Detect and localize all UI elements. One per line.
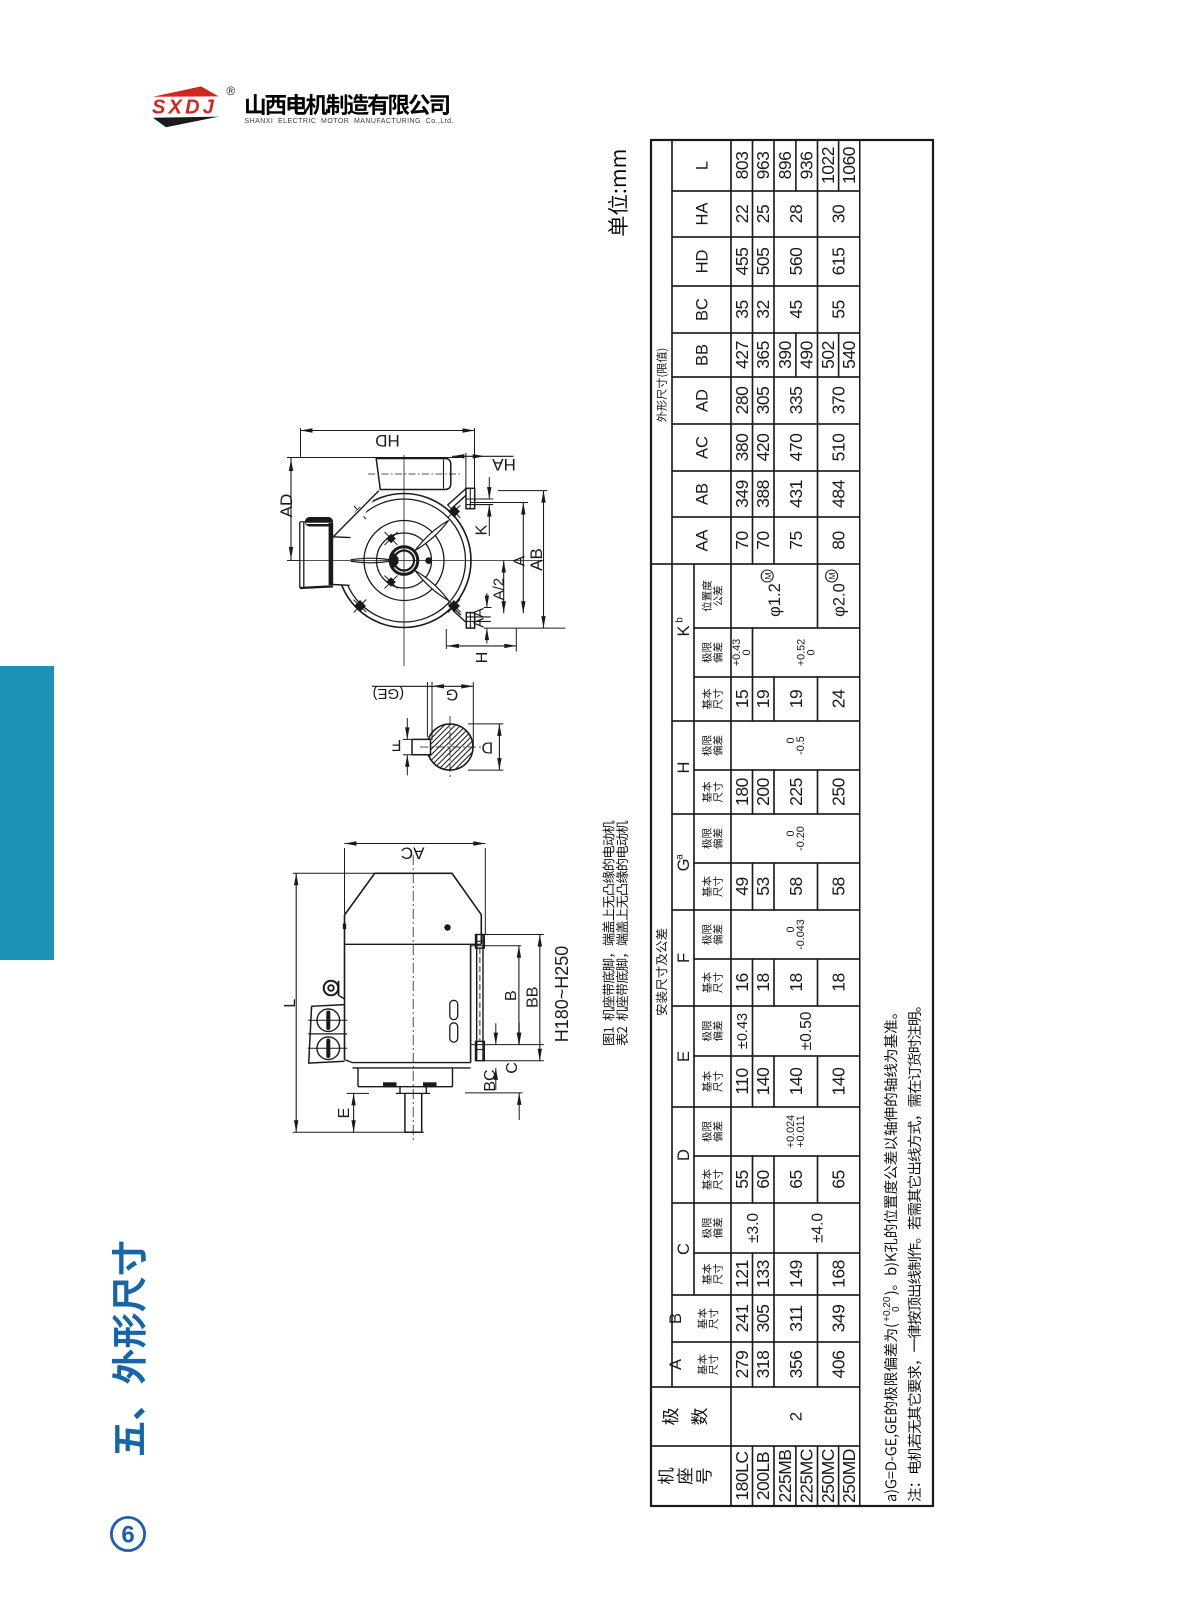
svg-text:311: 311 bbox=[786, 1305, 806, 1331]
svg-text:AD: AD bbox=[277, 494, 296, 518]
svg-text:560: 560 bbox=[786, 247, 806, 275]
svg-text:490: 490 bbox=[797, 340, 817, 368]
svg-text:250: 250 bbox=[829, 777, 849, 805]
svg-text:70: 70 bbox=[732, 531, 752, 550]
svg-text:963: 963 bbox=[753, 152, 773, 180]
svg-text:HD: HD bbox=[694, 250, 712, 274]
svg-text:0: 0 bbox=[806, 649, 818, 655]
svg-text:180: 180 bbox=[732, 777, 752, 805]
svg-text:365: 365 bbox=[753, 341, 773, 369]
svg-text:0: 0 bbox=[891, 1306, 902, 1312]
svg-text:32: 32 bbox=[753, 300, 773, 318]
svg-text:G: G bbox=[446, 685, 458, 702]
svg-text:1060: 1060 bbox=[839, 146, 859, 184]
svg-text:M: M bbox=[827, 572, 837, 579]
svg-text:b: b bbox=[675, 617, 686, 623]
svg-text:BC: BC bbox=[482, 1069, 499, 1091]
svg-text:2: 2 bbox=[786, 1412, 805, 1421]
svg-text:K: K bbox=[675, 625, 693, 636]
svg-text:431: 431 bbox=[786, 480, 806, 508]
svg-text:C: C bbox=[675, 1243, 693, 1255]
svg-text:505: 505 bbox=[753, 248, 773, 276]
svg-text:a: a bbox=[675, 854, 686, 860]
svg-text:49: 49 bbox=[732, 877, 752, 895]
svg-text:356: 356 bbox=[786, 1351, 806, 1379]
svg-text:470: 470 bbox=[786, 433, 806, 461]
svg-text:6: 6 bbox=[121, 1522, 134, 1549]
svg-text:-0.20: -0.20 bbox=[795, 826, 807, 851]
svg-text:19: 19 bbox=[753, 690, 773, 708]
svg-text:121: 121 bbox=[732, 1260, 752, 1288]
svg-text:BC: BC bbox=[694, 298, 712, 321]
svg-text:SXDJ: SXDJ bbox=[152, 97, 217, 119]
svg-text:H: H bbox=[474, 652, 491, 664]
svg-text:19: 19 bbox=[786, 690, 806, 708]
svg-text:B: B bbox=[503, 990, 520, 1001]
svg-text:A/2: A/2 bbox=[490, 578, 507, 601]
svg-text:349: 349 bbox=[732, 480, 752, 508]
svg-text:18: 18 bbox=[829, 973, 849, 991]
svg-text:H180~H250: H180~H250 bbox=[552, 946, 572, 1043]
svg-text:55: 55 bbox=[829, 300, 849, 318]
svg-text:φ2.0: φ2.0 bbox=[831, 583, 849, 617]
svg-text:D: D bbox=[675, 1149, 693, 1161]
svg-text:E: E bbox=[675, 1051, 693, 1062]
svg-text:110: 110 bbox=[732, 1068, 752, 1095]
svg-text:15: 15 bbox=[732, 690, 752, 708]
svg-text:E: E bbox=[336, 1108, 353, 1119]
svg-text:22: 22 bbox=[732, 205, 752, 223]
svg-text:936: 936 bbox=[797, 152, 817, 180]
svg-text:60: 60 bbox=[753, 1170, 773, 1189]
svg-text:200: 200 bbox=[753, 777, 773, 805]
svg-text:BB: BB bbox=[694, 344, 712, 366]
svg-text:AB: AB bbox=[694, 483, 712, 505]
svg-text:18: 18 bbox=[786, 973, 806, 991]
svg-text:225: 225 bbox=[786, 778, 806, 806]
svg-text:70: 70 bbox=[753, 531, 773, 550]
svg-text:M: M bbox=[763, 572, 773, 579]
svg-text:AD: AD bbox=[694, 389, 712, 412]
svg-text:140: 140 bbox=[753, 1067, 773, 1095]
svg-text:F: F bbox=[391, 736, 401, 753]
svg-text:225MB: 225MB bbox=[775, 1450, 795, 1503]
svg-text:349: 349 bbox=[829, 1305, 849, 1333]
svg-text:±0.43: ±0.43 bbox=[735, 1013, 751, 1049]
svg-text:180LC: 180LC bbox=[732, 1451, 752, 1500]
svg-text:335: 335 bbox=[786, 387, 806, 415]
svg-text:0: 0 bbox=[741, 649, 753, 655]
svg-text:58: 58 bbox=[786, 877, 806, 895]
svg-text:±4.0: ±4.0 bbox=[809, 1213, 826, 1243]
svg-text:-0.5: -0.5 bbox=[795, 736, 807, 755]
svg-text:803: 803 bbox=[732, 152, 752, 180]
svg-text:168: 168 bbox=[829, 1260, 849, 1288]
svg-text:279: 279 bbox=[732, 1351, 752, 1379]
svg-text:615: 615 bbox=[829, 248, 849, 276]
svg-text:45: 45 bbox=[786, 300, 806, 318]
svg-text:®: ® bbox=[226, 84, 235, 98]
svg-text:H: H bbox=[675, 762, 693, 774]
svg-text:F: F bbox=[675, 953, 693, 963]
svg-text:133: 133 bbox=[753, 1260, 773, 1288]
svg-text:55: 55 bbox=[732, 1170, 752, 1188]
svg-text:420: 420 bbox=[753, 433, 773, 461]
svg-text:AC: AC bbox=[694, 436, 712, 459]
svg-text:149: 149 bbox=[786, 1260, 806, 1288]
svg-text:-0.043: -0.043 bbox=[795, 919, 807, 950]
svg-text:540: 540 bbox=[839, 340, 859, 368]
svg-text:75: 75 bbox=[786, 531, 806, 549]
svg-text:±3.0: ±3.0 bbox=[745, 1213, 762, 1243]
svg-text:225MC: 225MC bbox=[797, 1449, 817, 1503]
svg-text:30: 30 bbox=[829, 204, 849, 223]
svg-text:28: 28 bbox=[786, 205, 806, 223]
svg-text:502: 502 bbox=[818, 341, 838, 369]
svg-text:K: K bbox=[474, 524, 491, 535]
svg-text:A: A bbox=[511, 555, 528, 566]
svg-text:A: A bbox=[667, 1359, 685, 1370]
svg-text:AA: AA bbox=[471, 608, 488, 628]
svg-text:484: 484 bbox=[829, 479, 849, 507]
svg-text:370: 370 bbox=[829, 386, 849, 414]
svg-text:25: 25 bbox=[753, 205, 773, 223]
svg-text:58: 58 bbox=[829, 877, 849, 895]
svg-text:AB: AB bbox=[527, 548, 546, 571]
svg-text:D: D bbox=[482, 739, 494, 756]
svg-text:427: 427 bbox=[732, 341, 752, 369]
svg-text:65: 65 bbox=[786, 1170, 806, 1188]
svg-text:HA: HA bbox=[694, 203, 712, 226]
svg-text:HD: HD bbox=[375, 431, 400, 450]
svg-text:305: 305 bbox=[753, 1305, 773, 1333]
svg-text:80: 80 bbox=[829, 531, 849, 550]
svg-text:35: 35 bbox=[732, 300, 752, 318]
svg-text:18: 18 bbox=[753, 973, 773, 991]
svg-text:1022: 1022 bbox=[818, 147, 838, 184]
svg-text:280: 280 bbox=[732, 386, 752, 414]
svg-text:455: 455 bbox=[732, 248, 752, 276]
svg-text:(GE): (GE) bbox=[372, 685, 404, 702]
svg-text:L: L bbox=[694, 161, 712, 170]
svg-text:±0.50: ±0.50 bbox=[798, 1011, 815, 1050]
svg-text:250MD: 250MD bbox=[839, 1449, 859, 1503]
svg-text:305: 305 bbox=[753, 387, 773, 415]
svg-text:B: B bbox=[667, 1313, 685, 1324]
svg-text:318: 318 bbox=[753, 1351, 773, 1379]
svg-text:140: 140 bbox=[786, 1067, 806, 1095]
svg-text:241: 241 bbox=[732, 1305, 752, 1333]
svg-text:200LB: 200LB bbox=[753, 1452, 773, 1500]
svg-text:250MC: 250MC bbox=[818, 1449, 838, 1503]
svg-text:C: C bbox=[504, 1062, 521, 1074]
svg-text:AC: AC bbox=[401, 843, 425, 862]
svg-text:896: 896 bbox=[775, 152, 795, 180]
svg-text:16: 16 bbox=[732, 973, 752, 991]
svg-text:BB: BB bbox=[524, 987, 541, 1008]
svg-text:L: L bbox=[282, 999, 299, 1008]
svg-text:HA: HA bbox=[492, 455, 516, 474]
svg-text:φ1.2: φ1.2 bbox=[766, 583, 784, 617]
svg-text:406: 406 bbox=[829, 1351, 849, 1379]
svg-text:+0.011: +0.011 bbox=[795, 1115, 807, 1148]
svg-text:53: 53 bbox=[753, 877, 773, 895]
svg-text:390: 390 bbox=[775, 340, 795, 368]
svg-text:65: 65 bbox=[829, 1170, 849, 1188]
svg-text:SHANXI ELECTRIC MOTOR MANUF: SHANXI ELECTRIC MOTOR MANUFACTURING Co.,… bbox=[245, 118, 454, 125]
svg-text:AA: AA bbox=[694, 529, 712, 551]
svg-text:24: 24 bbox=[829, 689, 849, 708]
svg-text:140: 140 bbox=[829, 1067, 849, 1095]
svg-text:380: 380 bbox=[732, 433, 752, 461]
svg-text:388: 388 bbox=[753, 480, 773, 508]
svg-text:510: 510 bbox=[829, 433, 849, 461]
